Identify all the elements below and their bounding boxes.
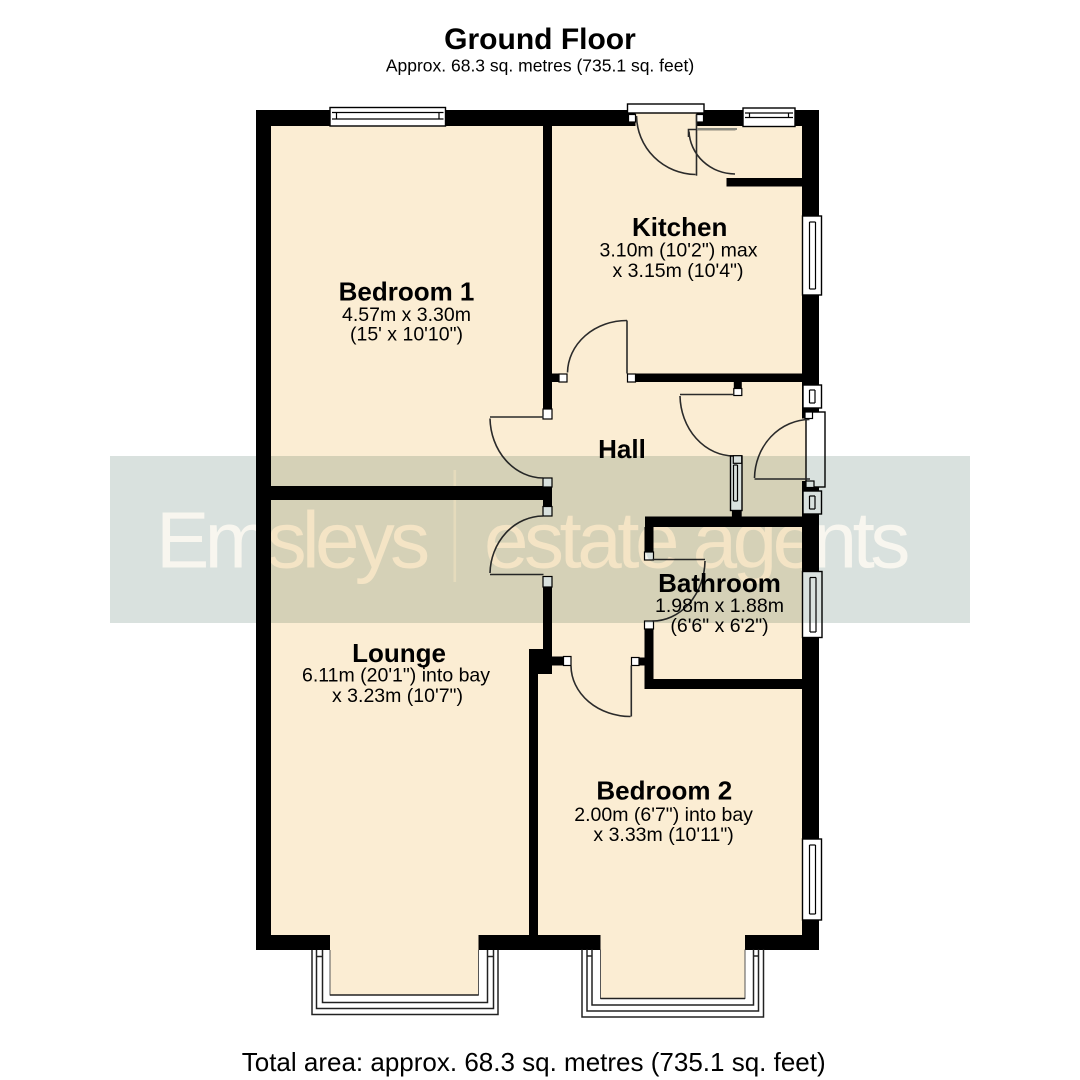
svg-text:Emsleys: Emsleys: [156, 496, 428, 585]
svg-text:Lounge: Lounge: [352, 638, 446, 668]
svg-text:x 3.15m (10'4"): x 3.15m (10'4"): [613, 260, 744, 282]
svg-text:2.00m (6'7") into bay: 2.00m (6'7") into bay: [574, 804, 753, 826]
svg-text:x 3.23m (10'7"): x 3.23m (10'7"): [332, 685, 463, 707]
svg-text:3.10m (10'2") max: 3.10m (10'2") max: [599, 240, 757, 262]
svg-text:Ground Floor: Ground Floor: [444, 23, 636, 56]
svg-text:Approx. 68.3 sq. metres (735.1: Approx. 68.3 sq. metres (735.1 sq. feet): [386, 56, 694, 76]
svg-text:estate agents: estate agents: [484, 496, 908, 585]
svg-text:x 3.33m (10'11"): x 3.33m (10'11"): [593, 824, 733, 846]
svg-text:(15' x 10'10"): (15' x 10'10"): [350, 323, 463, 345]
svg-text:Bedroom 2: Bedroom 2: [596, 776, 732, 806]
svg-text:Kitchen: Kitchen: [632, 212, 727, 242]
svg-text:Bedroom 1: Bedroom 1: [339, 276, 475, 306]
svg-text:6.11m (20'1") into bay: 6.11m (20'1") into bay: [302, 665, 490, 687]
svg-text:Total area: approx. 68.3 sq. m: Total area: approx. 68.3 sq. metres (735…: [242, 1047, 826, 1077]
